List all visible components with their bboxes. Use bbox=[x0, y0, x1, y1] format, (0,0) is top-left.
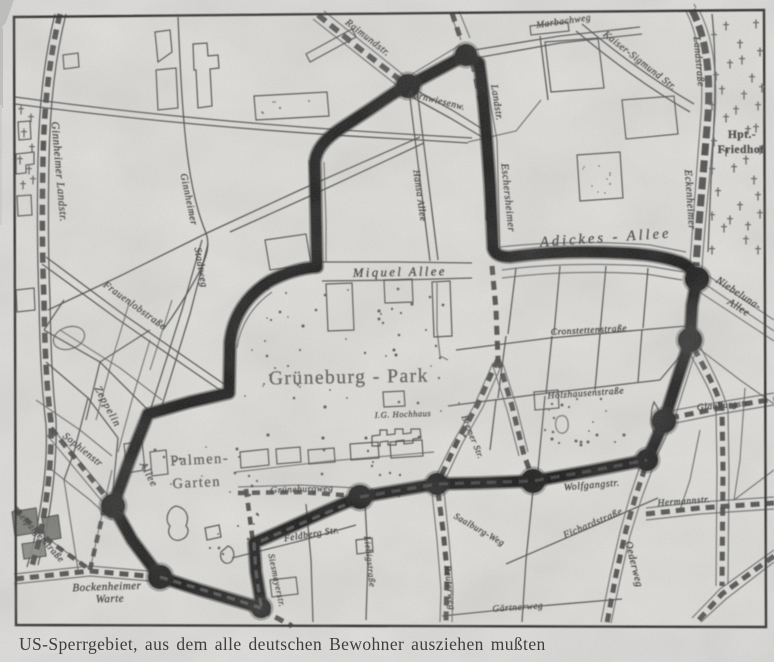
svg-text:US-Sperrgebiet, aus dem alle d: US-Sperrgebiet, aus dem alle deutschen B… bbox=[19, 634, 546, 654]
